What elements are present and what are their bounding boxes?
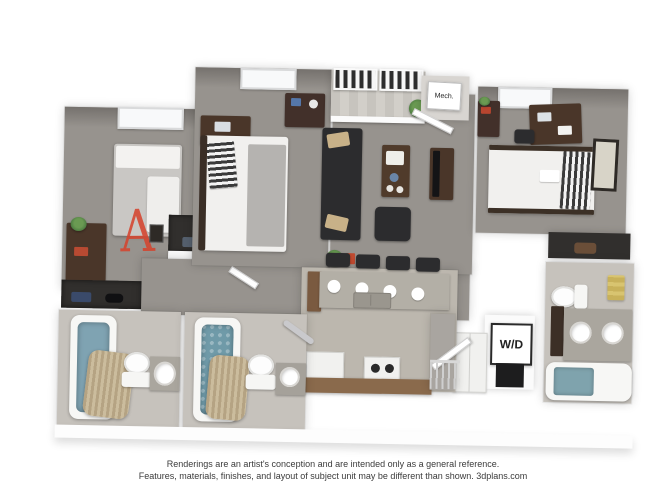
- coffee-table: [381, 145, 410, 198]
- bedroom3-striped-pillows: [560, 151, 594, 211]
- coffee-table-cup: [396, 186, 403, 193]
- bathroom2-toilet-tank: [246, 374, 276, 390]
- bedroom1-bed-pillows: [116, 146, 180, 169]
- bathroom3-toilet-tank: [574, 285, 587, 309]
- mech-closet-sign: Mech.: [426, 81, 461, 111]
- dresser-item: [309, 99, 318, 108]
- floorplan-3d-render: A: [0, 0, 666, 500]
- coffee-table-bowl: [390, 173, 399, 182]
- bedroom3-papers: [558, 126, 572, 135]
- bathroom3-gold-towels: [607, 275, 624, 300]
- bedroom2-bed-blanket: [246, 144, 286, 247]
- bedroom3-desk: [529, 103, 582, 145]
- bathroom1-toilet-tank: [122, 372, 152, 388]
- place-setting-plate: [327, 280, 340, 293]
- dresser-item: [291, 98, 301, 106]
- linen-closet: [61, 280, 144, 310]
- coffee-table-tray: [386, 151, 404, 165]
- disclaimer-line1: Renderings are an artist's conception an…: [0, 458, 666, 470]
- stove-burner: [385, 364, 394, 373]
- disclaimer-line2: Features, materials, finishes, and layou…: [0, 470, 666, 482]
- bedroom1-red-book: [74, 247, 88, 256]
- bar-stool-1: [326, 253, 350, 267]
- bar-stool-2: [356, 254, 380, 268]
- place-setting-plate: [411, 287, 424, 300]
- bedroom3-laptop: [537, 112, 551, 121]
- bedroom2-laptop: [214, 122, 230, 132]
- bathroom3-bath-mat: [553, 367, 594, 396]
- closet-bag: [574, 242, 596, 253]
- entry-stair-railing: [430, 360, 461, 390]
- coffee-table-cup: [386, 185, 393, 192]
- washer-dryer-opening: [496, 363, 524, 388]
- bar-stool-4: [416, 257, 440, 271]
- floorplan-screenshot: A: [0, 0, 666, 500]
- stove-burner: [371, 364, 380, 373]
- stove-cooktop: [364, 356, 400, 381]
- breakfast-bar-counter: [319, 272, 450, 310]
- bedroom3-plant: [479, 97, 490, 106]
- bedroom3-folded-towel: [540, 170, 560, 182]
- sink-divider: [370, 295, 371, 306]
- bedroom3-picture-frame: [590, 138, 619, 191]
- bedroom2-striped-pillows: [206, 141, 238, 189]
- kitchen-double-sink: [353, 292, 391, 309]
- bedroom2-window: [240, 68, 296, 90]
- washer-dryer-sign: W/D: [490, 323, 533, 366]
- disclaimer-caption: Renderings are an artist's conception an…: [0, 458, 666, 482]
- bedroom2-dresser: [285, 93, 326, 128]
- hallway-picture-frame: [149, 224, 163, 242]
- balcony-railing-left: [333, 68, 377, 91]
- balcony-railing-right: [379, 69, 423, 92]
- closet-item-blue: [71, 292, 91, 302]
- bedroom3-red-book: [481, 107, 491, 114]
- closet-item-black: [105, 294, 123, 303]
- bottom-outer-wall: [55, 425, 633, 449]
- bedroom1-window: [117, 107, 183, 130]
- washer-dryer-label: W/D: [500, 337, 524, 351]
- bedroom3-desk-chair: [514, 129, 534, 143]
- mech-closet-label: Mech.: [434, 92, 453, 100]
- bathroom3-cabinet: [550, 306, 564, 356]
- bar-stool-3: [386, 256, 410, 270]
- bathroom2-shower-curtain: [205, 354, 251, 421]
- tv-screen: [432, 151, 440, 197]
- armchair: [374, 207, 411, 242]
- kitchen-base-cabinets: [303, 377, 431, 394]
- bedroom3-closet: [548, 232, 630, 260]
